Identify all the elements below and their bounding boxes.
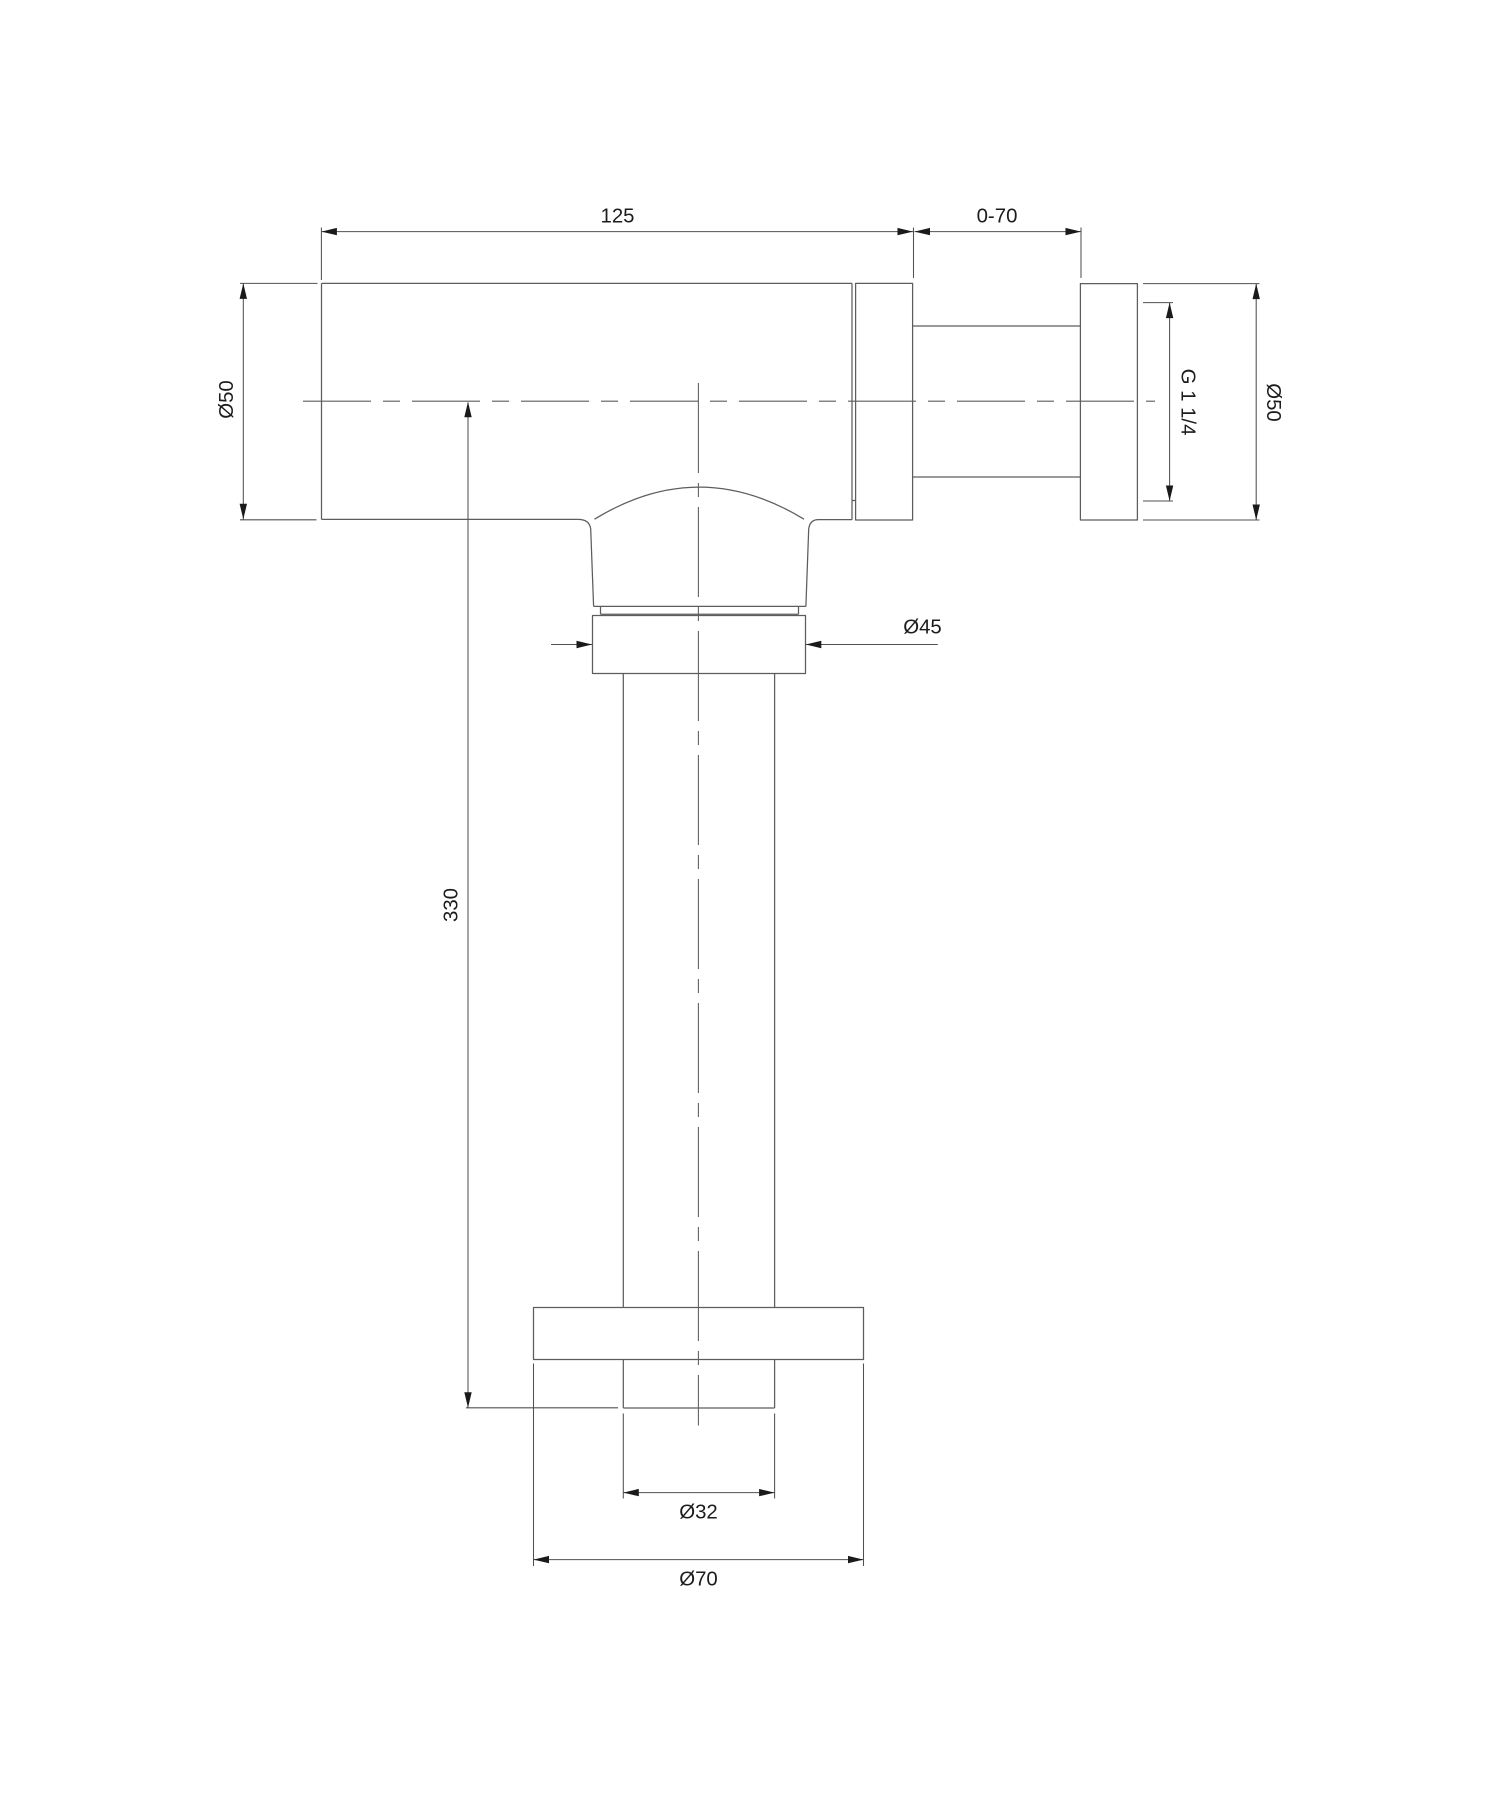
svg-text:330: 330 [440,888,462,922]
svg-text:Ø50: Ø50 [1262,383,1284,422]
svg-text:0-70: 0-70 [977,206,1018,228]
svg-text:Ø32: Ø32 [679,1501,718,1523]
svg-text:Ø50: Ø50 [216,380,238,419]
svg-text:Ø70: Ø70 [679,1569,718,1591]
svg-text:Ø45: Ø45 [903,617,942,639]
svg-text:G 1 1/4: G 1 1/4 [1176,369,1198,436]
svg-text:125: 125 [600,206,634,228]
